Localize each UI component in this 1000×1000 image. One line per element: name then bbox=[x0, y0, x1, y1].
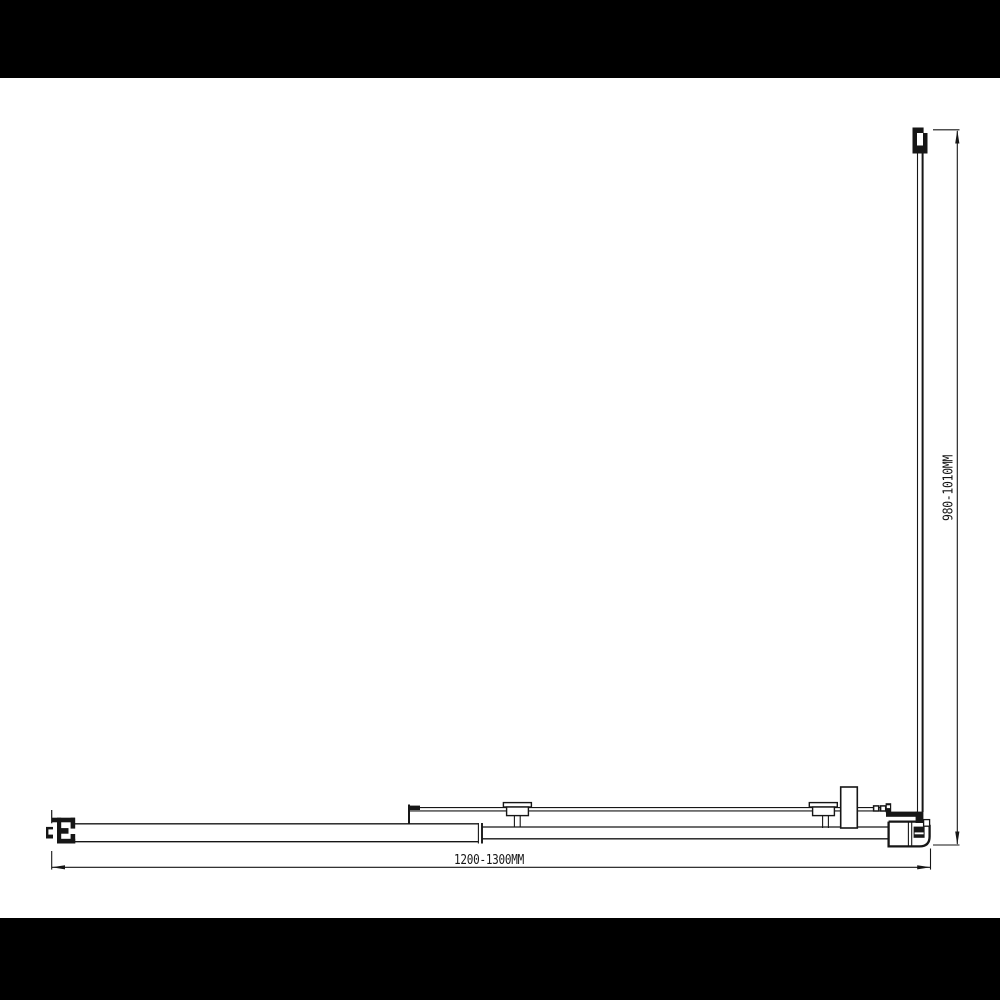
door-handle bbox=[841, 787, 858, 828]
technical-drawing: 980-1010MM bbox=[0, 0, 1000, 1000]
letterbox-bottom bbox=[0, 918, 1000, 1000]
letterbox-top bbox=[0, 0, 1000, 78]
width-dimension-label: 1200-1300MM bbox=[454, 853, 524, 868]
drawing-canvas bbox=[0, 0, 1000, 1000]
depth-dimension-label: 980-1010MM bbox=[942, 455, 957, 521]
top-wall-profile bbox=[913, 128, 928, 154]
drawing-stage: 980-1010MM bbox=[0, 0, 1000, 1000]
bar-wall-bracket bbox=[886, 812, 918, 817]
